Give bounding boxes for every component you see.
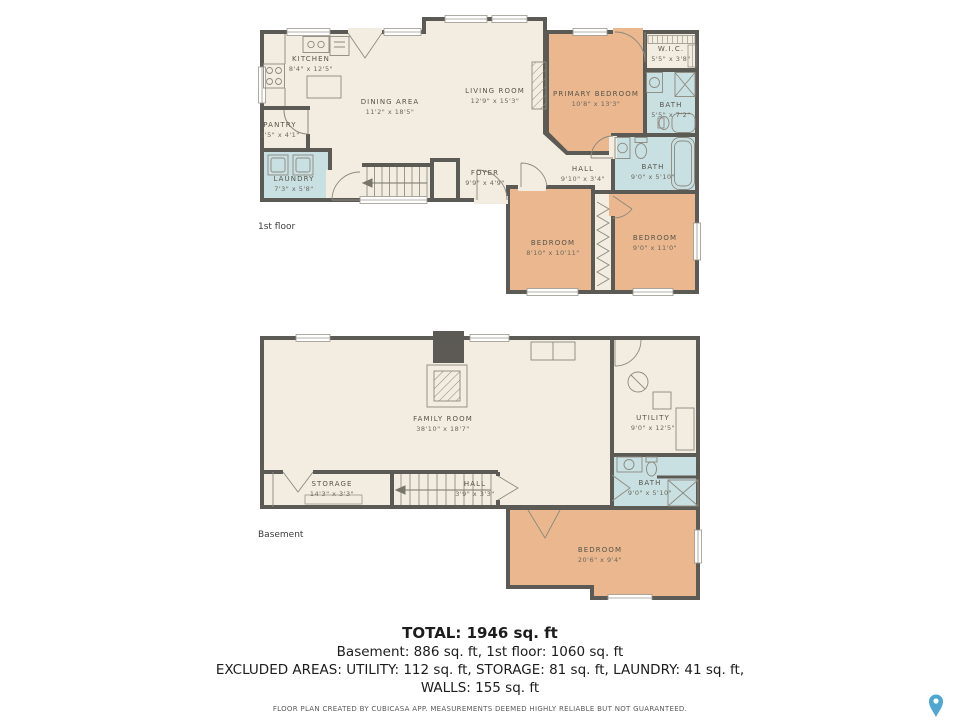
floor-label-basement: Basement xyxy=(258,530,303,540)
first-floor-plan-drawing xyxy=(255,12,705,302)
area-summary: TOTAL: 1946 sq. ft Basement: 886 sq. ft,… xyxy=(0,624,960,713)
floor-label-first-floor: 1st floor xyxy=(258,222,295,232)
total-area-text: TOTAL: 1946 sq. ft xyxy=(0,624,960,642)
floor-areas-text: Basement: 886 sq. ft, 1st floor: 1060 sq… xyxy=(0,644,960,660)
basement-plan-drawing xyxy=(255,330,705,600)
excluded-areas-text-2: WALLS: 155 sq. ft xyxy=(0,680,960,696)
location-pin-icon xyxy=(926,692,946,718)
excluded-areas-text-1: EXCLUDED AREAS: UTILITY: 112 sq. ft, STO… xyxy=(0,662,960,678)
first-floor-plan: KITCHEN 8'4" x 12'5" DINING AREA 11'2" x… xyxy=(255,12,705,302)
floor-plan-page: KITCHEN 8'4" x 12'5" DINING AREA 11'2" x… xyxy=(0,0,960,720)
disclaimer-text: FLOOR PLAN CREATED BY CUBICASA APP. MEAS… xyxy=(0,705,960,713)
fireplace xyxy=(427,331,467,407)
basement-plan: FAMILY ROOM 38'10" x 18'7" UTILITY 9'0" … xyxy=(255,330,705,600)
